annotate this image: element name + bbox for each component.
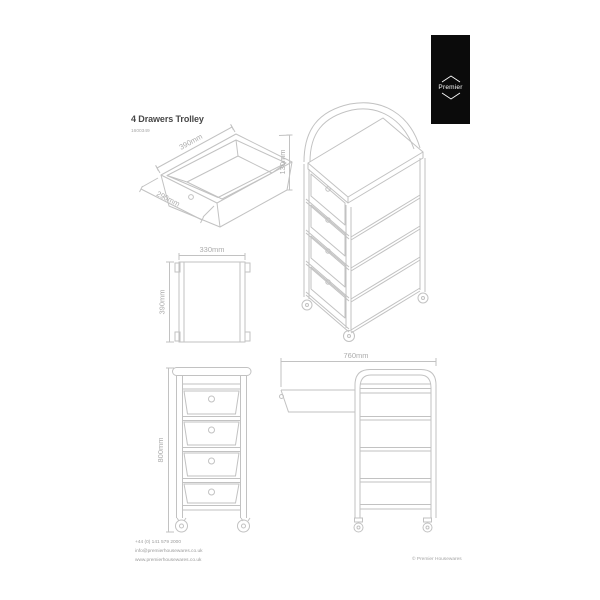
dim-front-height (166, 368, 174, 532)
trolley-top-view (166, 253, 250, 342)
dim-label-drawer-depth: 290mm (155, 189, 181, 208)
dim-label-drawer-width: 390mm (178, 132, 204, 152)
drawer-knob (189, 195, 194, 200)
contact-block: +44 (0) 141 579 2000 info@premierhousewa… (135, 538, 203, 565)
dim-top-width (179, 253, 245, 260)
copyright-notice: © Premier Housewares (412, 557, 462, 562)
dim-label-top-width: 330mm (199, 245, 224, 254)
trolley-isometric-view (302, 103, 428, 342)
extended-drawer (280, 390, 356, 412)
dim-label-drawer-height: 130mm (278, 149, 287, 174)
dim-top-depth (166, 262, 174, 342)
contact-website: www.premierhousewares.co.uk (135, 556, 203, 565)
caster-wheels-isometric (302, 293, 428, 342)
dim-label-side-width: 760mm (343, 351, 368, 360)
drawer-isometric-view (140, 124, 293, 227)
dim-drawer-width (156, 124, 235, 173)
technical-drawings: 390mm 290mm 130mm (0, 0, 600, 600)
caster-wheels-front (176, 518, 251, 532)
spec-sheet: 4 Drawers Trolley 1600349 Premier (0, 0, 600, 600)
dim-side-width (281, 358, 436, 387)
contact-phone: +44 (0) 141 579 2000 (135, 538, 203, 547)
trolley-front-view (166, 368, 251, 533)
trolley-side-view (280, 358, 437, 532)
dim-label-top-depth: 390mm (158, 289, 167, 314)
contact-email: info@premierhousewares.co.uk (135, 547, 203, 556)
dim-label-front-height: 800mm (156, 437, 165, 462)
caster-wheels-side (354, 518, 432, 532)
